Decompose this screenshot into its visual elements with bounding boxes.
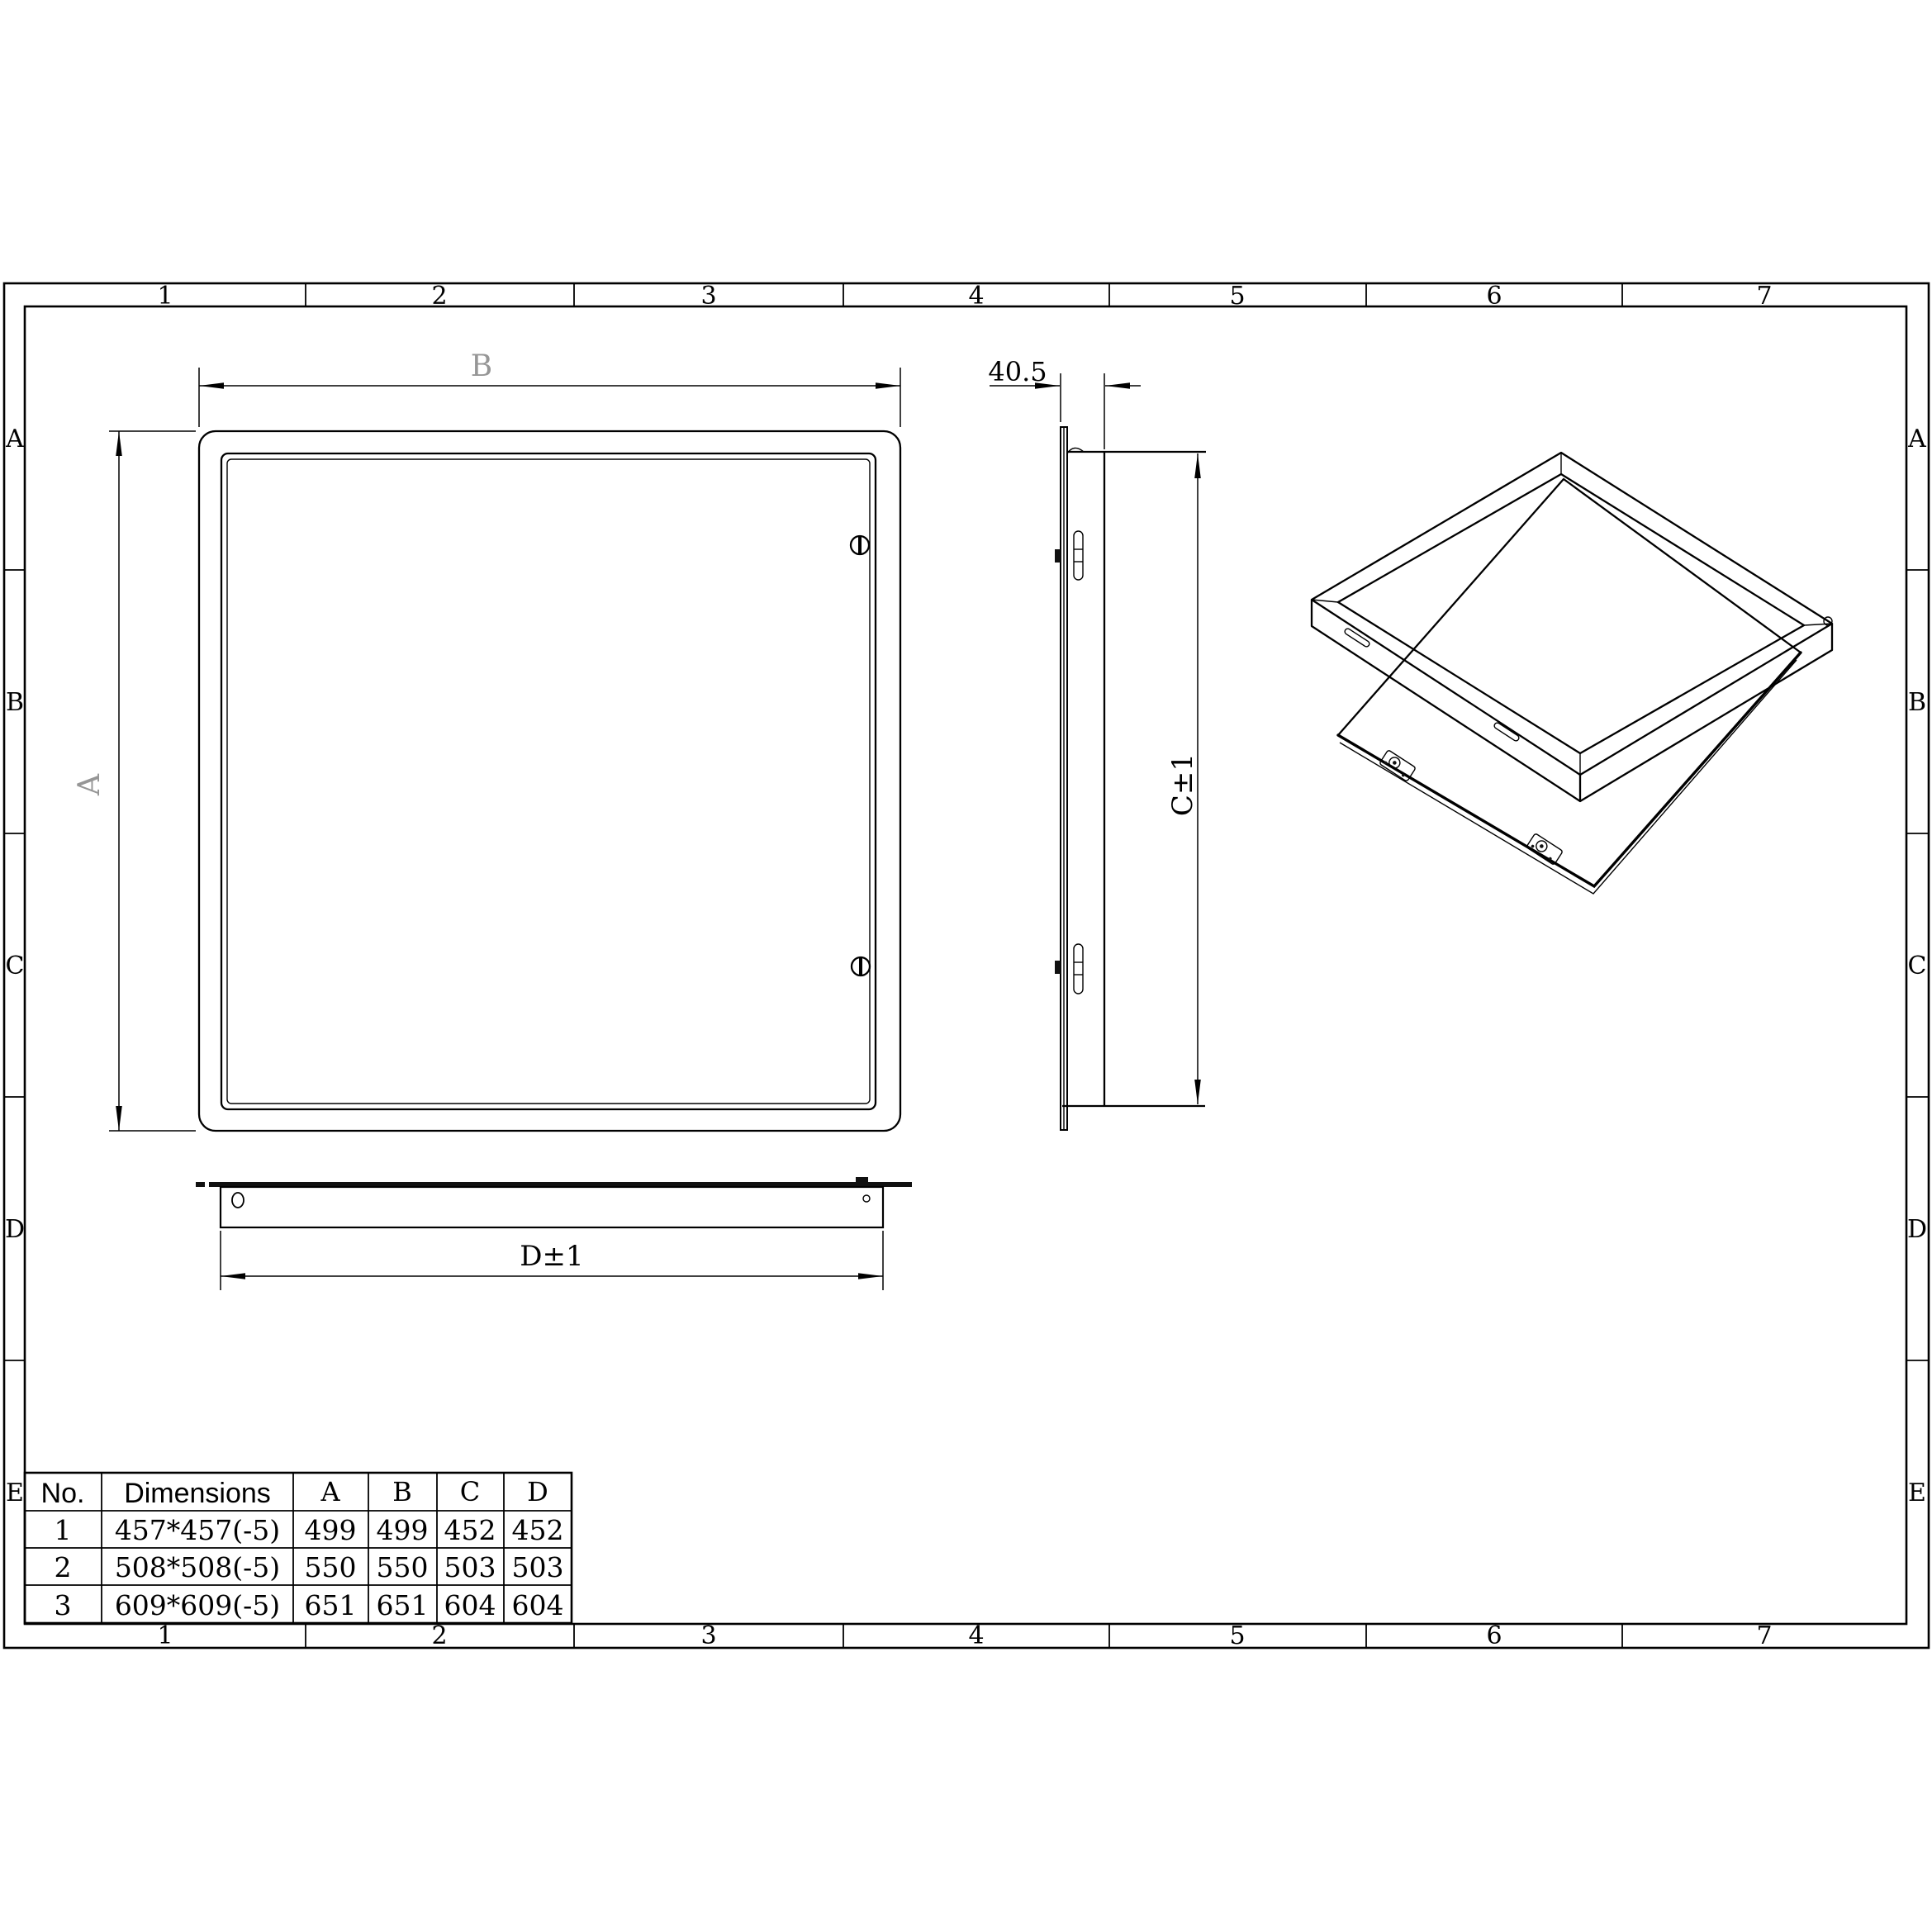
bottom-body <box>221 1187 883 1227</box>
table-cell: 508*508(-5) <box>115 1551 280 1583</box>
dimension-a: A <box>73 431 196 1131</box>
grid-row-label: C <box>6 952 25 980</box>
table-row: 2 508*508(-5) 550 550 503 503 <box>55 1551 564 1583</box>
table-cell: 2 <box>55 1551 72 1583</box>
grid-col-label: 5 <box>1229 1621 1245 1650</box>
grid-row-label: B <box>1908 688 1926 717</box>
table-cell: 457*457(-5) <box>115 1514 280 1546</box>
table-cell: 651 <box>305 1589 357 1621</box>
grid-row-label: D <box>5 1215 25 1244</box>
grid-row-label: A <box>1907 425 1926 453</box>
table-row: 3 609*609(-5) 651 651 604 604 <box>55 1589 564 1621</box>
dimension-c: C±1 <box>1166 453 1199 1104</box>
table-row: 1 457*457(-5) 499 499 452 452 <box>55 1514 564 1546</box>
panel-door-outline <box>221 453 876 1109</box>
grid-row-label: A <box>5 425 24 453</box>
iso-door-panel <box>1338 479 1801 886</box>
table-cell: 452 <box>512 1514 564 1546</box>
dimension-b-label: B <box>471 349 492 383</box>
table-cell: 604 <box>512 1589 564 1621</box>
dimension-d: D±1 <box>221 1231 883 1290</box>
side-latch-slot-bottom <box>1055 944 1083 994</box>
grid-row-label: E <box>1908 1479 1926 1507</box>
table-header-no: No. <box>41 1478 85 1509</box>
table-cell: 609*609(-5) <box>115 1589 280 1621</box>
latch-screw-bottom <box>852 957 870 976</box>
table-header-row: No. Dimensions A B C D <box>41 1476 548 1509</box>
grid-col-label: 7 <box>1756 282 1772 311</box>
front-view: B A <box>73 349 900 1131</box>
table-header-a: A <box>320 1476 340 1507</box>
table-cell: 452 <box>444 1514 496 1546</box>
dimension-table: No. Dimensions A B C D 1 457*457(-5) 499… <box>25 1473 572 1623</box>
table-cell: 1 <box>55 1514 72 1546</box>
table-cell: 550 <box>377 1551 429 1583</box>
table-cell: 499 <box>305 1514 357 1546</box>
table-header-d: D <box>527 1476 548 1507</box>
dimension-c-label: C±1 <box>1166 753 1199 816</box>
grid-col-label: 5 <box>1229 282 1245 311</box>
grid-row-label: C <box>1908 952 1927 980</box>
grid-col-label: 1 <box>157 282 173 311</box>
panel-door-inner-edge <box>227 459 870 1104</box>
zone-grid-dividers <box>4 283 1929 1648</box>
grid-col-label: 2 <box>431 282 447 311</box>
dimension-b: B <box>199 349 900 427</box>
table-cell: 499 <box>377 1514 429 1546</box>
grid-row-label: D <box>1907 1215 1927 1244</box>
panel-frame-outline <box>199 431 900 1131</box>
grid-col-label: 1 <box>157 1621 173 1650</box>
zone-grid-row-labels: A B C D E A B C D E <box>5 425 1927 1507</box>
sheet-border: 1 2 3 4 5 6 7 1 2 3 4 5 6 7 A B C D E A … <box>4 282 1929 1650</box>
bottom-view: D±1 <box>196 1177 912 1290</box>
drawing-sheet: 1 2 3 4 5 6 7 1 2 3 4 5 6 7 A B C D E A … <box>0 0 1932 1932</box>
outer-border <box>4 283 1929 1648</box>
side-view: 40.5 C±1 <box>988 356 1206 1130</box>
table-cell: 503 <box>512 1551 564 1583</box>
dimension-d-label: D±1 <box>520 1240 583 1273</box>
grid-col-label: 3 <box>700 282 716 311</box>
grid-col-label: 3 <box>700 1621 716 1650</box>
latch-screw-top <box>851 535 869 555</box>
iso-frame-outer <box>1312 453 1832 775</box>
grid-row-label: B <box>6 688 24 717</box>
table-header-b: B <box>392 1476 412 1507</box>
dimension-a-label: A <box>73 773 107 796</box>
grid-col-label: 7 <box>1756 1621 1772 1650</box>
grid-col-label: 4 <box>968 282 984 311</box>
table-cell: 604 <box>444 1589 496 1621</box>
side-latch-slot-top <box>1055 531 1083 580</box>
grid-col-label: 2 <box>431 1621 447 1650</box>
grid-col-label: 6 <box>1486 282 1502 311</box>
zone-grid-bottom-labels: 1 2 3 4 5 6 7 <box>157 1621 1772 1650</box>
isometric-view <box>1312 453 1832 894</box>
iso-wall-slot <box>1344 628 1370 648</box>
grid-col-label: 6 <box>1486 1621 1502 1650</box>
grid-row-label: E <box>6 1479 24 1507</box>
table-cell: 651 <box>377 1589 429 1621</box>
grid-col-label: 4 <box>968 1621 984 1650</box>
dimension-depth-label: 40.5 <box>988 356 1047 387</box>
table-cell: 550 <box>305 1551 357 1583</box>
table-header-dimensions: Dimensions <box>124 1478 271 1509</box>
inner-border <box>25 306 1906 1624</box>
table-header-c: C <box>460 1476 480 1507</box>
engineering-drawing-canvas: 1 2 3 4 5 6 7 1 2 3 4 5 6 7 A B C D E A … <box>0 0 1932 1932</box>
table-cell: 503 <box>444 1551 496 1583</box>
table-cell: 3 <box>55 1589 72 1621</box>
iso-frame-inner <box>1338 474 1804 753</box>
